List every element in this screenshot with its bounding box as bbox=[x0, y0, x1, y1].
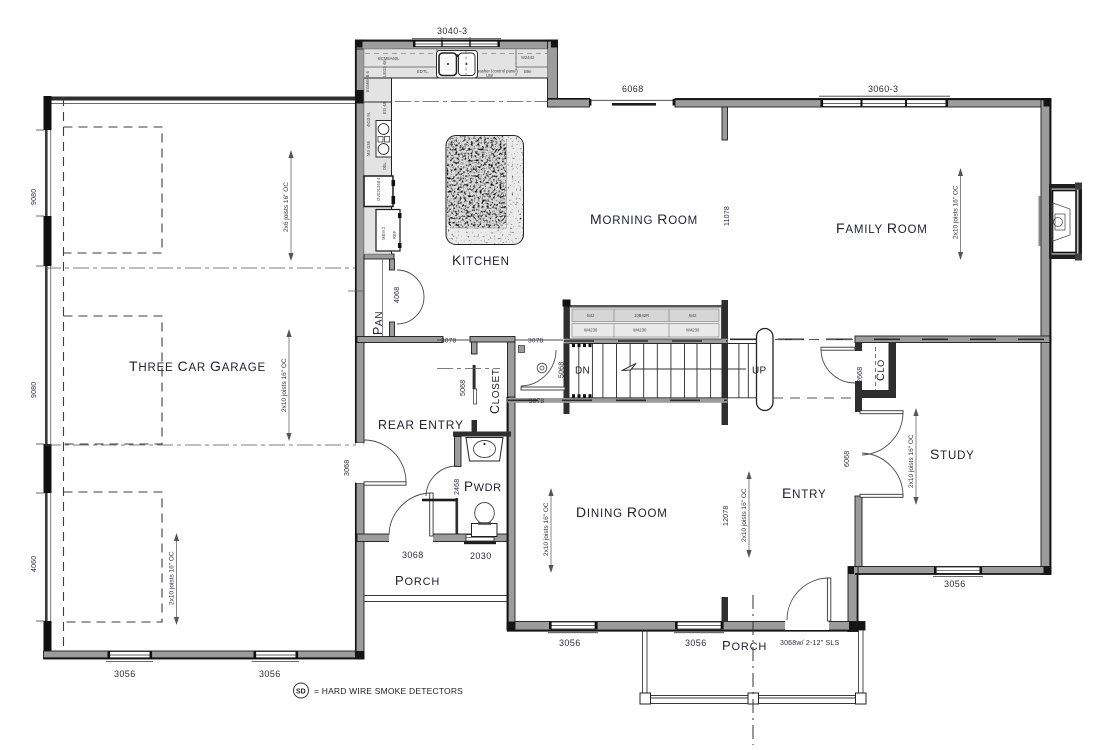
svg-text:3078: 3078 bbox=[528, 338, 543, 345]
svg-text:3056: 3056 bbox=[944, 579, 966, 589]
svg-text:M3 G36: M3 G36 bbox=[366, 140, 371, 156]
svg-text:3068: 3068 bbox=[344, 460, 351, 476]
svg-text:9080: 9080 bbox=[31, 189, 38, 205]
svg-text:SD: SD bbox=[296, 689, 306, 696]
svg-text:CLO: CLO bbox=[875, 359, 887, 381]
svg-text:4IG3 9L: 4IG3 9L bbox=[366, 111, 371, 127]
svg-text:2668: 2668 bbox=[857, 367, 864, 383]
svg-text:W4230: W4230 bbox=[686, 328, 700, 333]
svg-text:EGM8AB 6: EGM8AB 6 bbox=[365, 70, 370, 92]
svg-text:2030: 2030 bbox=[470, 551, 492, 561]
svg-text:W2442: W2442 bbox=[521, 55, 535, 60]
svg-text:3056: 3056 bbox=[114, 669, 136, 679]
svg-text:PAN: PAN bbox=[371, 311, 385, 335]
svg-text:LEG3 48: LEG3 48 bbox=[382, 60, 387, 77]
svg-text:DbL: DbL bbox=[382, 162, 387, 170]
svg-text:B9e: B9e bbox=[524, 69, 532, 74]
svg-text:MEM 2: MEM 2 bbox=[381, 226, 386, 240]
svg-text:W4230: W4230 bbox=[584, 328, 598, 333]
svg-text:2x6 joists 16" OC: 2x6 joists 16" OC bbox=[283, 182, 290, 232]
svg-text:3078: 3078 bbox=[529, 398, 544, 405]
svg-text:W4230: W4230 bbox=[633, 328, 647, 333]
svg-text:EG 48: EG 48 bbox=[382, 101, 387, 114]
svg-text:2x10 joists 16" OC: 2x10 joists 16" OC bbox=[543, 502, 550, 556]
svg-text:3068: 3068 bbox=[402, 550, 424, 560]
svg-text:2x10 joists 16" OC: 2x10 joists 16" OC bbox=[953, 185, 960, 239]
svg-text:5068: 5068 bbox=[460, 380, 467, 396]
svg-text:11078: 11078 bbox=[724, 206, 731, 226]
svg-text:PWDR: PWDR bbox=[464, 479, 502, 494]
svg-text:REF: REF bbox=[392, 230, 397, 239]
svg-text:2x10 joists 16" OC: 2x10 joists 16" OC bbox=[908, 434, 915, 488]
svg-text:DN: DN bbox=[575, 366, 590, 377]
svg-text:6068: 6068 bbox=[844, 451, 851, 467]
svg-text:5068: 5068 bbox=[559, 362, 566, 378]
svg-text:3078: 3078 bbox=[441, 338, 456, 345]
svg-text:3056: 3056 bbox=[559, 638, 581, 648]
svg-text:= HARD WIRE SMOKE DETECTORS: = HARD WIRE SMOKE DETECTORS bbox=[314, 686, 463, 696]
svg-text:3056: 3056 bbox=[685, 638, 707, 648]
svg-text:3068w/ 2-12" SLS: 3068w/ 2-12" SLS bbox=[780, 640, 840, 647]
svg-text:3056: 3056 bbox=[259, 669, 281, 679]
svg-text:9080: 9080 bbox=[31, 382, 38, 398]
svg-text:B42: B42 bbox=[689, 313, 697, 318]
svg-text:10B42R: 10B42R bbox=[634, 313, 649, 318]
svg-text:PORCH: PORCH bbox=[722, 638, 767, 653]
svg-text:PORCH: PORCH bbox=[395, 573, 440, 588]
svg-text:3040-3: 3040-3 bbox=[437, 26, 467, 36]
svg-text:3060-3: 3060-3 bbox=[868, 84, 898, 94]
svg-text:2x10 joists 16" OC: 2x10 joists 16" OC bbox=[281, 358, 288, 412]
svg-text:2468: 2468 bbox=[454, 479, 461, 495]
svg-text:4068: 4068 bbox=[394, 287, 401, 303]
svg-text:2x10 joists 16" OC: 2x10 joists 16" OC bbox=[741, 488, 748, 542]
svg-text:2x10 joists 16" OC: 2x10 joists 16" OC bbox=[169, 551, 176, 605]
svg-text:CLOSET: CLOSET bbox=[488, 369, 502, 414]
svg-text:EDTL.: EDTL. bbox=[417, 69, 429, 74]
svg-text:REAR ENTRY: REAR ENTRY bbox=[378, 418, 464, 432]
svg-text:12078: 12078 bbox=[723, 506, 730, 526]
svg-text:OV031348 4: OV031348 4 bbox=[376, 177, 381, 201]
svg-text:UP: UP bbox=[752, 366, 767, 377]
svg-text:UW: UW bbox=[486, 73, 493, 78]
svg-text:B42: B42 bbox=[587, 313, 595, 318]
svg-text:6068: 6068 bbox=[622, 84, 644, 94]
svg-text:4060: 4060 bbox=[31, 556, 38, 572]
svg-text:BCM8A60L: BCM8A60L bbox=[378, 56, 400, 61]
